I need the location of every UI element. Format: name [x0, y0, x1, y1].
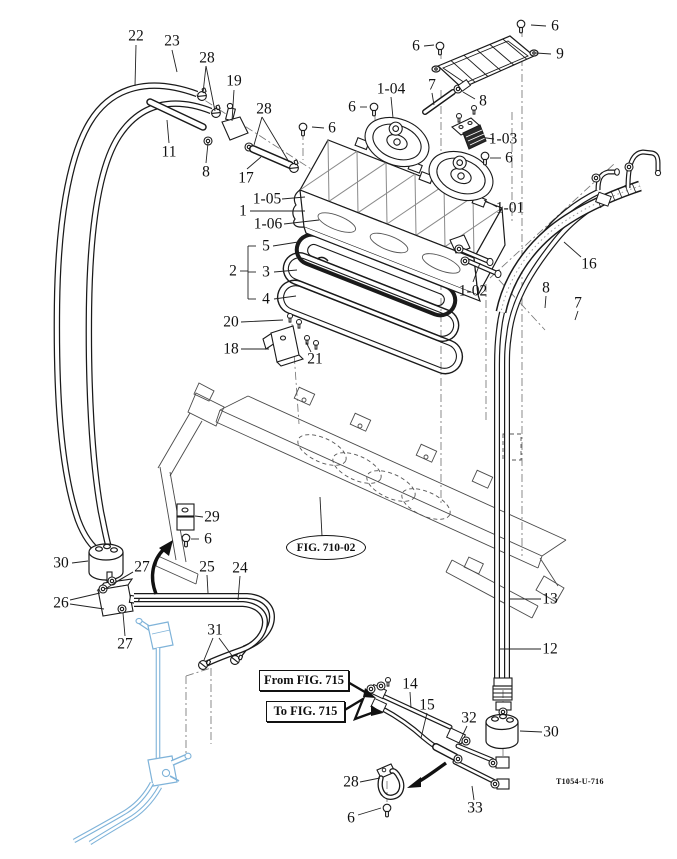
callout-23: 23	[164, 33, 180, 49]
callout-6-b: 6	[551, 18, 559, 34]
to-figure-box: To FIG. 715	[266, 701, 345, 722]
callout-32: 32	[461, 710, 477, 726]
callout-1-03: 1-03	[489, 131, 517, 147]
callout-21: 21	[307, 351, 323, 367]
callout-11: 11	[162, 144, 177, 160]
callout-19: 19	[226, 73, 242, 89]
callout-6-e: 6	[505, 150, 513, 166]
parts-diagram-page: 22 23 28 19 28 11 8 17 6 6 9 7 8 1-04 6 …	[0, 0, 677, 859]
callout-15: 15	[419, 697, 435, 713]
callout-29: 29	[204, 509, 220, 525]
drawing-code: T1054-U-716	[556, 777, 604, 786]
callout-7-a: 7	[428, 77, 436, 93]
canister-30-left	[89, 544, 123, 580]
callout-18: 18	[223, 341, 239, 357]
callout-2: 2	[229, 263, 237, 279]
to-figure-text: To FIG. 715	[274, 704, 338, 719]
callout-26: 26	[53, 595, 69, 611]
figure-reference-text: FIG. 710-02	[297, 542, 356, 554]
inline-fittings	[196, 88, 301, 174]
callout-30-b: 30	[543, 724, 559, 740]
bracket-18	[263, 326, 303, 366]
callout-16: 16	[581, 256, 597, 272]
callout-27-b: 27	[117, 636, 133, 652]
callout-1-05: 1-05	[253, 191, 281, 207]
callout-1-04: 1-04	[377, 81, 405, 97]
callout-31: 31	[207, 622, 223, 638]
callout-4: 4	[262, 291, 270, 307]
callout-33: 33	[467, 800, 483, 816]
from-figure-box: From FIG. 715	[259, 670, 349, 691]
callout-1-02: 1-02	[459, 283, 487, 299]
callout-6-d: 6	[328, 120, 336, 136]
callout-12: 12	[542, 641, 558, 657]
callout-1-01: 1-01	[496, 200, 524, 216]
clamp-29	[177, 504, 194, 530]
callout-30-a: 30	[53, 555, 69, 571]
callout-6-f: 6	[204, 531, 212, 547]
callout-1: 1	[239, 203, 247, 219]
callout-13: 13	[542, 591, 558, 607]
callout-1-06: 1-06	[254, 216, 282, 232]
heater-hoses-22-23	[57, 86, 211, 553]
callout-28-c: 28	[343, 774, 359, 790]
figure-reference-bubble: FIG. 710-02	[286, 535, 366, 560]
from-figure-text: From FIG. 715	[264, 673, 344, 688]
callout-5: 5	[262, 238, 270, 254]
canister-30-right	[486, 714, 518, 748]
callout-28-a: 28	[199, 50, 215, 66]
callout-3: 3	[262, 264, 270, 280]
callout-6-g: 6	[347, 810, 355, 826]
valve-19	[222, 103, 248, 140]
callout-8-b: 8	[479, 93, 487, 109]
resistor-1-03	[452, 118, 486, 149]
hose-end-coupling	[493, 678, 512, 710]
direction-arrows	[153, 540, 446, 788]
callout-27-a: 27	[134, 559, 150, 575]
diagram-line-art	[0, 0, 677, 859]
callout-14: 14	[402, 676, 418, 692]
hook-bracket-28	[377, 764, 402, 797]
callout-24: 24	[232, 560, 248, 576]
callout-25: 25	[199, 559, 215, 575]
callout-17: 17	[238, 170, 254, 186]
callout-6-a: 6	[412, 38, 420, 54]
callout-20: 20	[223, 314, 239, 330]
callout-8-c: 8	[542, 280, 550, 296]
callout-8-a: 8	[202, 164, 210, 180]
callout-22: 22	[128, 28, 144, 44]
callout-7-b: 7	[574, 295, 582, 311]
callout-9: 9	[556, 46, 564, 62]
callout-28-b: 28	[256, 101, 272, 117]
callout-6-c: 6	[348, 99, 356, 115]
